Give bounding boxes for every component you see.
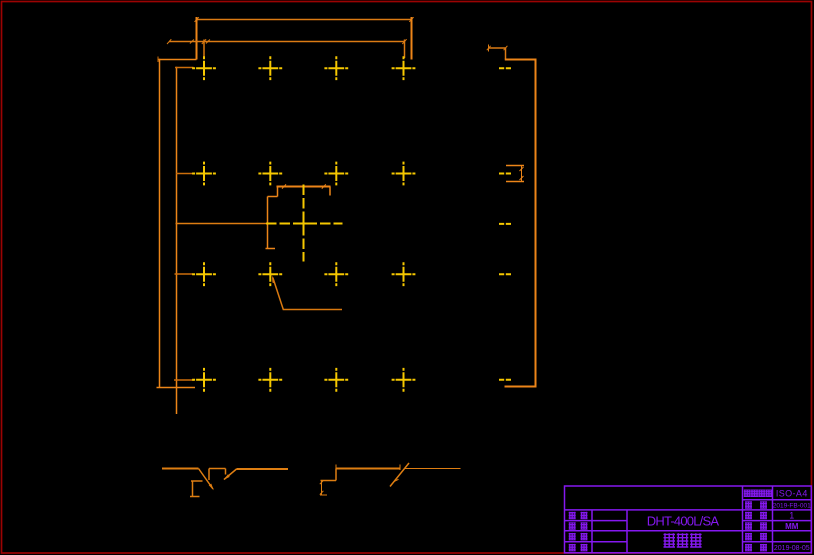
svg-text:DHT-400L/SA: DHT-400L/SA	[647, 513, 720, 528]
svg-text:ISO-A4: ISO-A4	[776, 489, 808, 499]
svg-text:MM: MM	[785, 522, 799, 531]
svg-text:2019-08-05: 2019-08-05	[774, 545, 810, 552]
svg-text:2019-FB-001: 2019-FB-001	[773, 503, 811, 510]
svg-text:1: 1	[789, 511, 794, 521]
